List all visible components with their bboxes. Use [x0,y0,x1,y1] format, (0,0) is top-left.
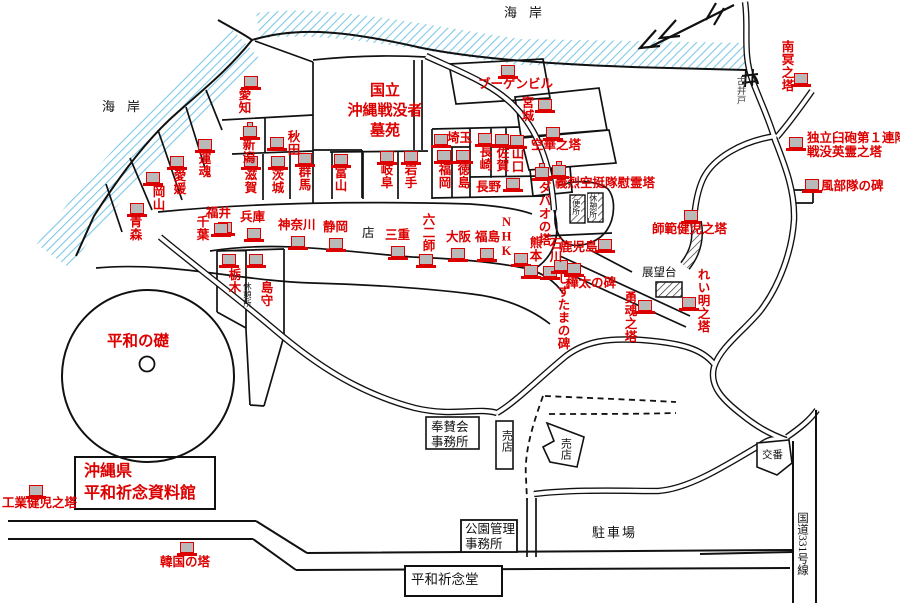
aichi-label: 愛知 [236,88,250,114]
kankoku-no-to-label: 韓国の塔 [160,556,210,570]
rest-area-west-label: 休憩所 [242,282,252,308]
toyama-monument-icon [334,154,348,165]
nhk-label: NHK [499,215,513,259]
tokushima-monument-icon [456,150,470,161]
aomori-label: 青森 [127,215,141,241]
coast-label-west-label: 海岸 [102,99,152,115]
dokuritsu-kyuho-monument-icon [789,137,803,148]
shizuoka-label: 静岡 [323,221,348,235]
park-admin-office-label: 公園管理 事務所 [465,522,515,553]
nagasaki-label: 長崎 [477,145,491,171]
peace-foundation-label: 平和の礎 [107,329,169,351]
miyagi-monument-icon [538,99,552,110]
map-linework [0,0,900,603]
shiga-label: 滋賀 [242,168,256,194]
ehime-monument-icon [170,156,184,167]
nanmei-no-to-monument-icon [794,73,808,84]
ibaraki-monument-icon [271,156,285,167]
cemetery-label-line1: 国立 [370,83,400,99]
peace-memorial-park-map: 国立 沖縄戦没者 墓苑 平和の礎 沖縄県 平和祈念資料館 愛知新潟秋田滋賀茨城群… [0,0,900,603]
shimamori-label: 島守 [258,281,272,307]
fukuoka-monument-icon [437,150,451,161]
route-331-label: 国道331号線 [795,512,809,575]
niigata-monument-icon [243,126,257,137]
kogyo-kenji-no-to-monument-icon [29,485,43,496]
giretsu-kuteitai-ireito-label: 義烈空挺隊慰霊塔 [555,177,655,191]
cemetery-label-line3: 墓苑 [370,123,400,139]
old-well-label-label: 古井戸 [733,76,745,105]
fukushima-monument-icon [480,248,494,259]
parking-label-label: 駐車場 [592,525,637,541]
unkon-label: 運魂 [196,152,210,178]
kagoshima-label: 鹿児島 [560,241,598,255]
kuge-no-to-label: 空華之塔 [531,139,581,153]
fukui-monument-icon [214,223,228,234]
north-arrow-icon [640,3,734,48]
police-box-label: 交番 [762,450,783,463]
osaka-label: 大阪 [446,231,471,245]
kogyo-kenji-no-to-label: 工業健児之塔 [2,497,77,511]
tokushima-label: 徳島 [455,163,469,189]
mie-monument-icon [391,246,405,257]
shizuoka-monument-icon [329,238,343,249]
observation-deck [656,282,682,297]
saga-monument-icon [495,134,509,145]
kagoshima-monument-icon [598,239,612,250]
hyogo-label: 兵庫 [240,211,265,225]
cemetery-label-line2: 沖縄戦没者 [347,103,422,119]
kumamoto-monument-icon [524,265,538,276]
niigata-label: 新潟 [240,138,254,164]
gunma-label: 群馬 [296,165,310,191]
davao-no-to-label: ダバオの塔 [536,181,550,246]
unkon-monument-icon [198,139,212,150]
toyama-label: 富山 [332,166,346,192]
rokuni-shi-label: 六二師 [420,213,434,252]
nhk-monument-icon [514,253,528,264]
rest-area-east-label: 休憩所 [588,194,598,218]
kuge-no-to-monument-icon [546,127,560,138]
toilet-label-label: 便所 [571,199,581,215]
saga-label: 佐賀 [494,146,508,172]
yukon-no-to-label: 勇魂之塔 [622,291,636,343]
peace-memorial-hall-label: 平和祈念堂 [411,572,479,588]
shimamori-monument-icon [249,254,263,265]
miyagi-label: 宮城 [519,96,533,122]
yamaguchi-label: 山口 [509,147,523,173]
kanagawa-label: 神奈川 [278,219,316,233]
osaka-monument-icon [451,248,465,259]
kaze-butai-no-hi-label: 風部隊の碑 [821,180,884,194]
yamaguchi-monument-icon [510,135,524,146]
nagasaki-monument-icon [478,133,492,144]
rokuni-shi-monument-icon [419,254,433,265]
saitama-label: 埼玉 [447,132,472,146]
kaze-butai-no-hi-monument-icon [805,179,819,190]
museum-label-line2: 平和祈念資料館 [84,485,196,502]
akita-label: 秋田 [285,130,299,156]
nagano-monument-icon [506,178,520,189]
reimei-no-to-label: れい明之塔 [695,268,709,333]
okayama-label: 岡山 [150,185,164,211]
nanmei-no-to-label: 南冥之塔 [779,40,793,92]
museum-label-line1: 沖縄県 [84,463,132,480]
shop-1-label: 売店 [499,430,512,452]
iwate-label: 岩手 [402,163,416,189]
davao-no-to-monument-icon [535,167,549,178]
tochigi-label: 栃木 [226,268,240,294]
yukon-no-to-monument-icon [638,300,652,311]
ibaraki-label: 茨城 [269,168,283,194]
giretsu-kuteitai-ireito-monument-icon [552,165,566,176]
hyogo-monument-icon [247,228,261,239]
aomori-monument-icon [130,203,144,214]
karafuto-no-hi-label: 樺太の碑 [566,277,616,291]
cemetery-label: 国立 沖縄戦没者 墓苑 [328,81,442,141]
bougainville-label: ブーゲンビル [478,78,553,92]
tochigi-monument-icon [222,254,236,265]
fukushima-label: 福島 [475,231,500,245]
dokuritsu-kyuho-label: 独立臼砲第１連隊 戦没英霊之塔 [807,132,900,159]
okayama-monument-icon [146,172,160,183]
akita-monument-icon [270,137,284,148]
fukuoka-label: 福岡 [436,163,450,189]
shop-plot-label-label: 店 [362,226,375,241]
reimei-no-to-monument-icon [682,297,696,308]
ehime-label: 愛媛 [171,169,185,195]
iwate-monument-icon [404,151,418,162]
kankoku-no-to-monument-icon [180,542,194,553]
museum-label: 沖縄県 平和祈念資料館 [84,461,196,505]
mie-label: 三重 [385,229,410,243]
nagano-label: 長野 [476,181,501,195]
gifu-monument-icon [380,151,394,162]
bougainville-monument-icon [501,65,515,76]
kanagawa-monument-icon [291,236,305,247]
aichi-monument-icon [244,76,258,87]
shihan-kenji-no-to-label: 師範健児之塔 [652,223,727,237]
hosankai-office-label: 奉賛会 事務所 [431,420,469,451]
shihan-kenji-no-to-monument-icon [684,210,698,221]
shop-2-label: 売店 [558,438,571,460]
coast-label-north-label: 海岸 [504,5,554,21]
gifu-label: 岐阜 [378,163,392,189]
gunma-monument-icon [298,153,312,164]
fukui-label: 福井 [206,207,231,221]
peace-foundation-circle [62,290,234,462]
observation-deck-label-label: 展望台 [642,266,677,280]
